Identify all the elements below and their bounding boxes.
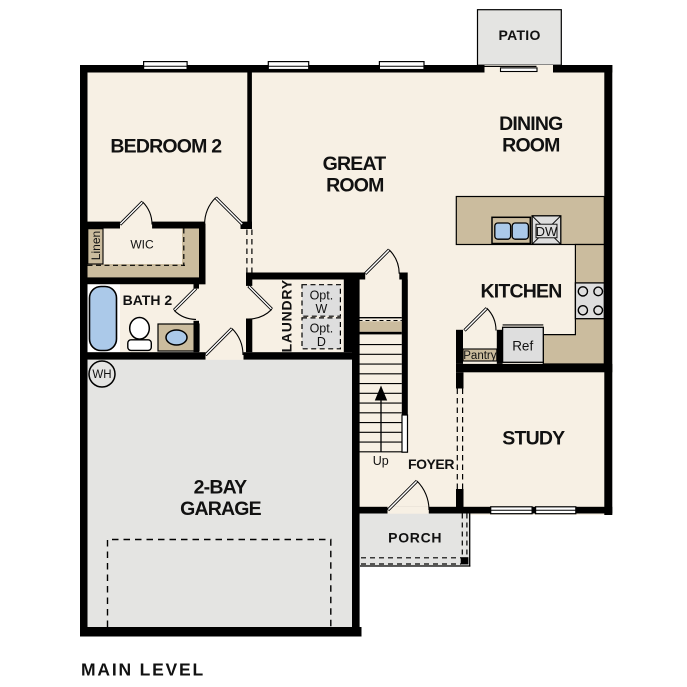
svg-text:Pantry: Pantry: [463, 350, 496, 362]
svg-text:ROOM: ROOM: [502, 134, 559, 156]
svg-text:Opt.: Opt.: [310, 289, 334, 303]
svg-text:DINING: DINING: [499, 113, 562, 135]
svg-text:Linen: Linen: [89, 231, 103, 260]
svg-text:ROOM: ROOM: [326, 174, 383, 196]
svg-text:W: W: [315, 302, 327, 316]
svg-text:MAIN LEVEL: MAIN LEVEL: [81, 660, 205, 680]
svg-text:D: D: [317, 335, 326, 349]
svg-text:STUDY: STUDY: [502, 428, 565, 450]
svg-text:GREAT: GREAT: [323, 153, 387, 175]
svg-text:KITCHEN: KITCHEN: [480, 281, 561, 303]
svg-text:LAUNDRY: LAUNDRY: [279, 279, 295, 352]
svg-text:FOYER: FOYER: [408, 456, 454, 472]
svg-text:2-BAY: 2-BAY: [194, 476, 248, 498]
svg-text:BATH 2: BATH 2: [123, 292, 173, 308]
svg-text:WH: WH: [92, 369, 111, 381]
svg-text:Opt.: Opt.: [310, 322, 334, 336]
svg-text:PATIO: PATIO: [498, 27, 540, 43]
svg-text:BEDROOM 2: BEDROOM 2: [110, 136, 222, 158]
svg-text:PORCH: PORCH: [388, 530, 442, 546]
svg-text:GARAGE: GARAGE: [180, 498, 262, 520]
svg-text:WIC: WIC: [130, 238, 154, 252]
svg-text:Up: Up: [373, 454, 389, 468]
svg-text:Ref: Ref: [512, 339, 533, 354]
svg-text:DW: DW: [536, 224, 558, 239]
